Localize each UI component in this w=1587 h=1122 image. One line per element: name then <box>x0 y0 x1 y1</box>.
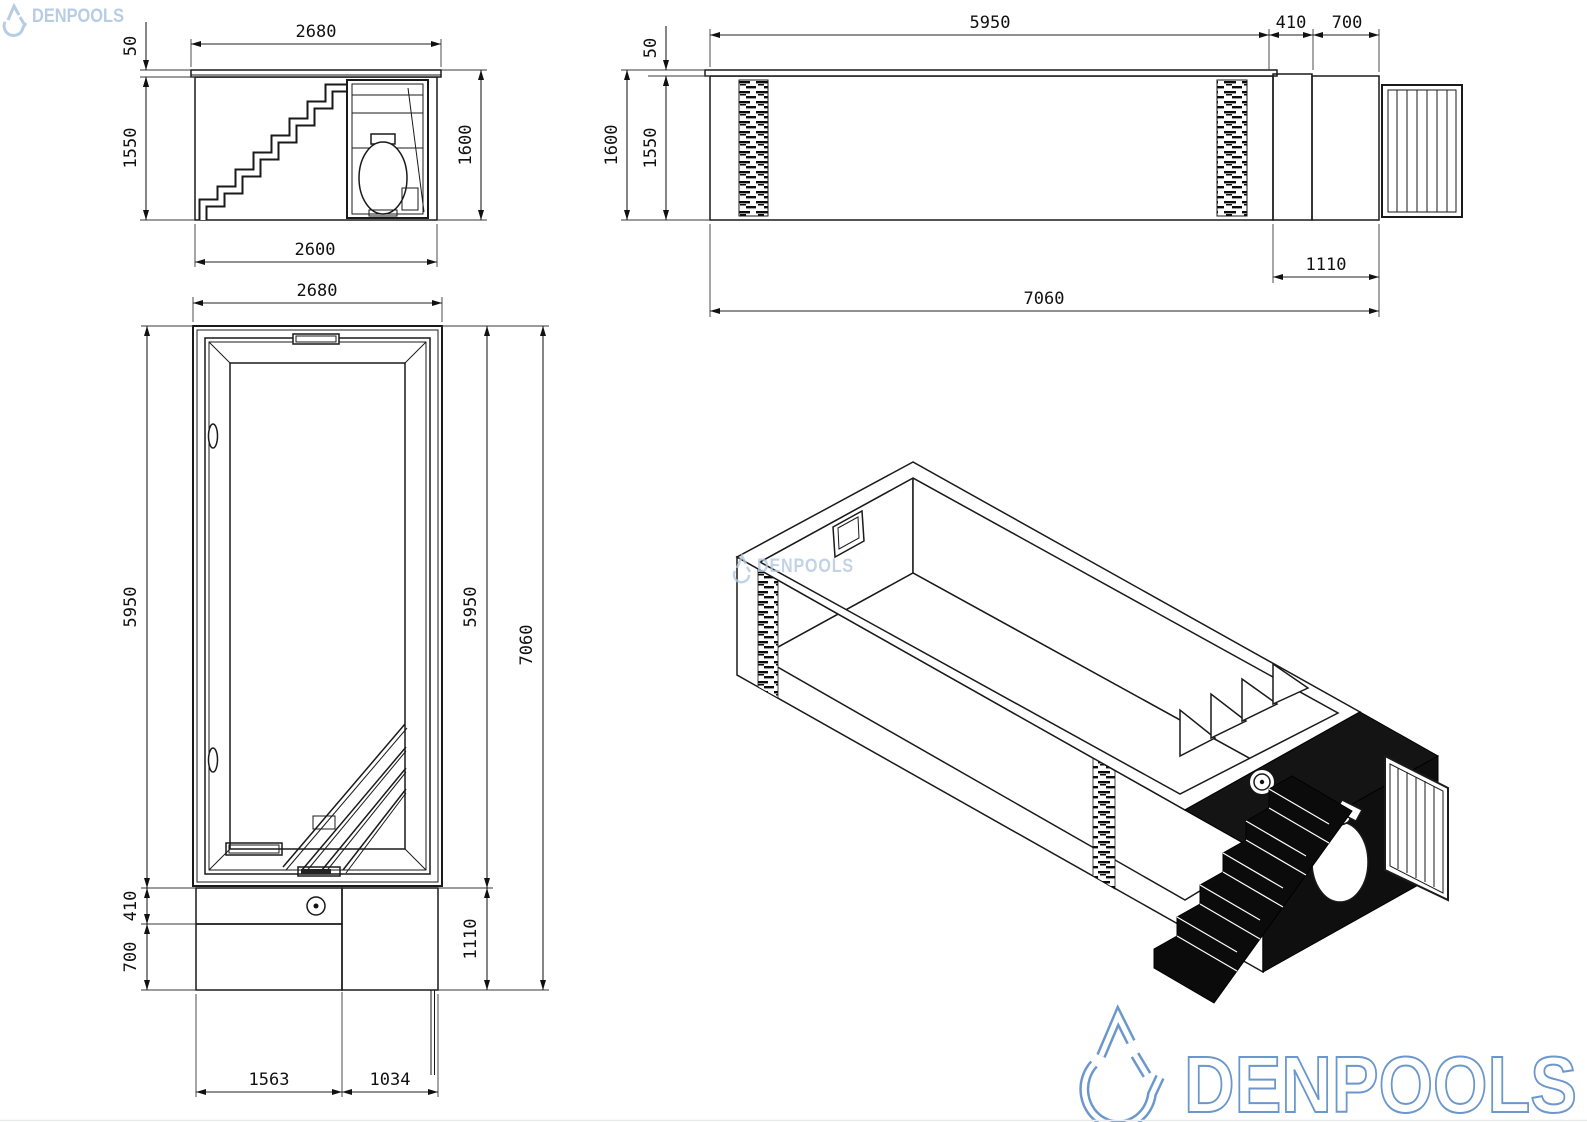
isometric-view: DENPOOLS <box>734 462 1448 1003</box>
dim-side-stair-bay: 700 <box>1332 13 1363 33</box>
watermark-text: DENPOOLS <box>757 556 854 577</box>
dim-plan-base-left: 1563 <box>249 1070 290 1090</box>
dim-side-body-height: 1550 <box>641 128 661 169</box>
dim-plan-length-left: 5950 <box>121 587 141 628</box>
dim-side-coping: 50 <box>641 38 661 58</box>
side-stair-bay <box>1312 76 1379 220</box>
end-stairs-profile <box>203 88 347 220</box>
side-coping <box>705 70 1277 76</box>
header-logo: DENPOOLS <box>4 6 124 35</box>
footer-logo-text: DENPOOLS <box>1184 1040 1577 1122</box>
dim-side-overall-length: 7060 <box>1024 289 1065 309</box>
footer-droplet-icon <box>1084 1016 1160 1122</box>
plan-skimmer <box>293 334 339 344</box>
pool-light-lower <box>209 748 218 772</box>
side-textured-panel-left <box>739 80 768 216</box>
side-access-door <box>1382 85 1462 217</box>
dim-end-coping: 50 <box>121 36 141 56</box>
sand-filter-tank <box>359 142 407 214</box>
side-pump-bay <box>1273 74 1312 220</box>
dim-side-deck-length: 1110 <box>1306 255 1347 275</box>
side-textured-panel-right <box>1217 80 1247 216</box>
dim-side-overall-height: 1600 <box>602 125 622 166</box>
end-elevation-dimensions: 2680 50 1550 1600 2600 <box>121 22 487 267</box>
iso-textured-panel-left <box>758 569 778 698</box>
dim-side-pump-bay: 410 <box>1276 13 1307 33</box>
dim-end-overall-height: 1600 <box>456 125 476 166</box>
dim-side-pool-length: 5950 <box>970 13 1011 33</box>
pool-technical-drawing: 2680 50 1550 1600 2600 <box>0 0 1587 1122</box>
footer-logo: DENPOOLS <box>1084 1016 1577 1122</box>
dim-plan-top-width: 2680 <box>297 281 338 301</box>
plan-deck-right <box>342 888 438 990</box>
side-siding-wall <box>710 76 1273 220</box>
plan-deck <box>196 888 438 1075</box>
dim-plan-deck-right: 1110 <box>461 919 481 960</box>
dim-plan-length-right: 5950 <box>461 587 481 628</box>
end-elevation-view: 2680 50 1550 1600 2600 <box>121 22 487 267</box>
dim-end-base-width: 2600 <box>295 240 336 260</box>
side-elevation-dimensions: 5950 410 700 50 1600 1550 1110 7060 <box>602 13 1379 317</box>
dim-plan-overall-length: 7060 <box>517 625 537 666</box>
side-elevation-view: 5950 410 700 50 1600 1550 1110 7060 <box>602 13 1462 317</box>
dim-end-top-width: 2680 <box>296 22 337 42</box>
dim-plan-base-right: 1034 <box>370 1070 411 1090</box>
blueprint-canvas: 2680 50 1550 1600 2600 <box>0 0 1587 1122</box>
header-droplet-icon <box>4 6 26 35</box>
dim-end-body-height: 1550 <box>121 128 141 169</box>
header-logo-text: DENPOOLS <box>32 6 124 27</box>
end-coping <box>191 70 441 77</box>
iso-textured-panel-right <box>1093 758 1115 889</box>
plan-view: 2680 5950 410 700 5950 1110 7060 1563 10… <box>121 281 549 1097</box>
end-equipment-compartment <box>347 80 428 218</box>
pool-light-upper <box>209 424 218 448</box>
dim-plan-deck-upper: 410 <box>121 891 141 922</box>
dim-plan-deck-lower: 700 <box>121 942 141 973</box>
